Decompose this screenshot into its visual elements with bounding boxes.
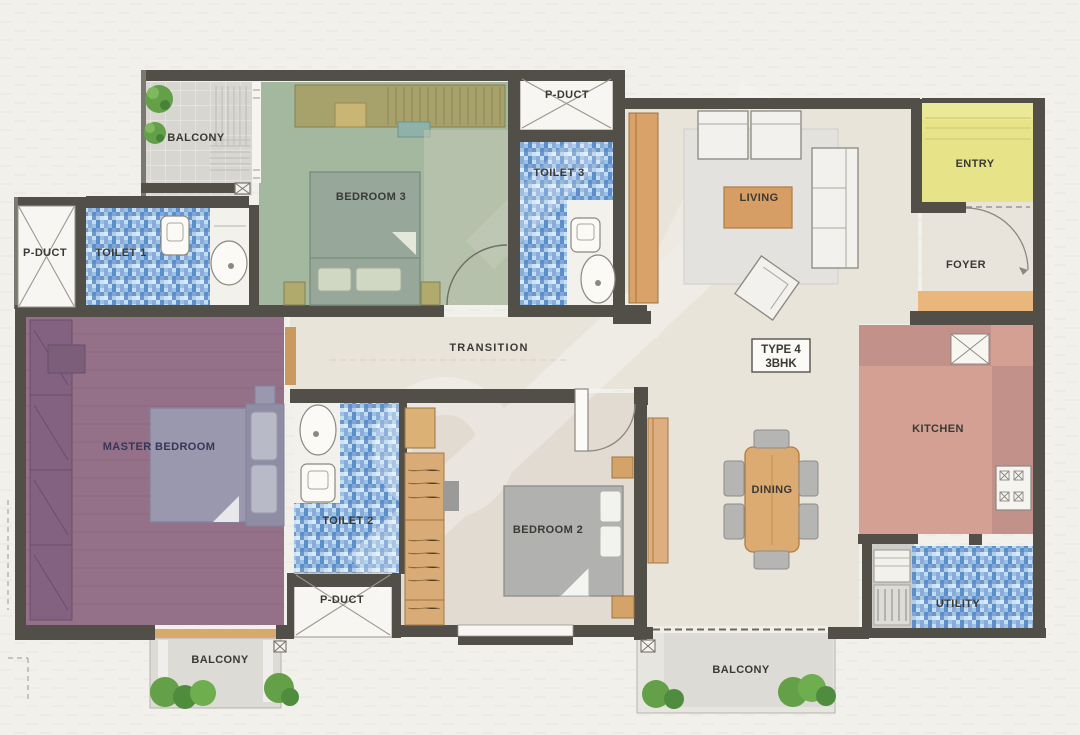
svg-text:LIVING: LIVING <box>739 192 778 204</box>
svg-text:P-DUCT: P-DUCT <box>23 247 67 259</box>
svg-text:FOYER: FOYER <box>946 259 986 271</box>
svg-text:TOILET 2: TOILET 2 <box>322 515 373 527</box>
svg-text:TYPE 4: TYPE 4 <box>761 344 801 356</box>
svg-text:BALCONY: BALCONY <box>191 654 248 666</box>
svg-text:P-DUCT: P-DUCT <box>545 89 589 101</box>
svg-text:P-DUCT: P-DUCT <box>320 594 364 606</box>
svg-text:TOILET 3: TOILET 3 <box>533 167 584 179</box>
svg-text:BALCONY: BALCONY <box>167 132 224 144</box>
svg-text:BEDROOM 3: BEDROOM 3 <box>336 191 406 203</box>
svg-text:ENTRY: ENTRY <box>956 158 995 170</box>
svg-text:KITCHEN: KITCHEN <box>912 423 964 435</box>
svg-text:DINING: DINING <box>752 484 793 496</box>
svg-text:TOILET 1: TOILET 1 <box>95 247 146 259</box>
svg-text:3BHK: 3BHK <box>765 358 797 370</box>
svg-text:BEDROOM 2: BEDROOM 2 <box>513 524 583 536</box>
svg-text:BALCONY: BALCONY <box>712 664 769 676</box>
svg-text:TRANSITION: TRANSITION <box>449 342 528 354</box>
svg-text:UTILITY: UTILITY <box>936 598 981 610</box>
svg-text:MASTER BEDROOM: MASTER BEDROOM <box>103 441 216 453</box>
